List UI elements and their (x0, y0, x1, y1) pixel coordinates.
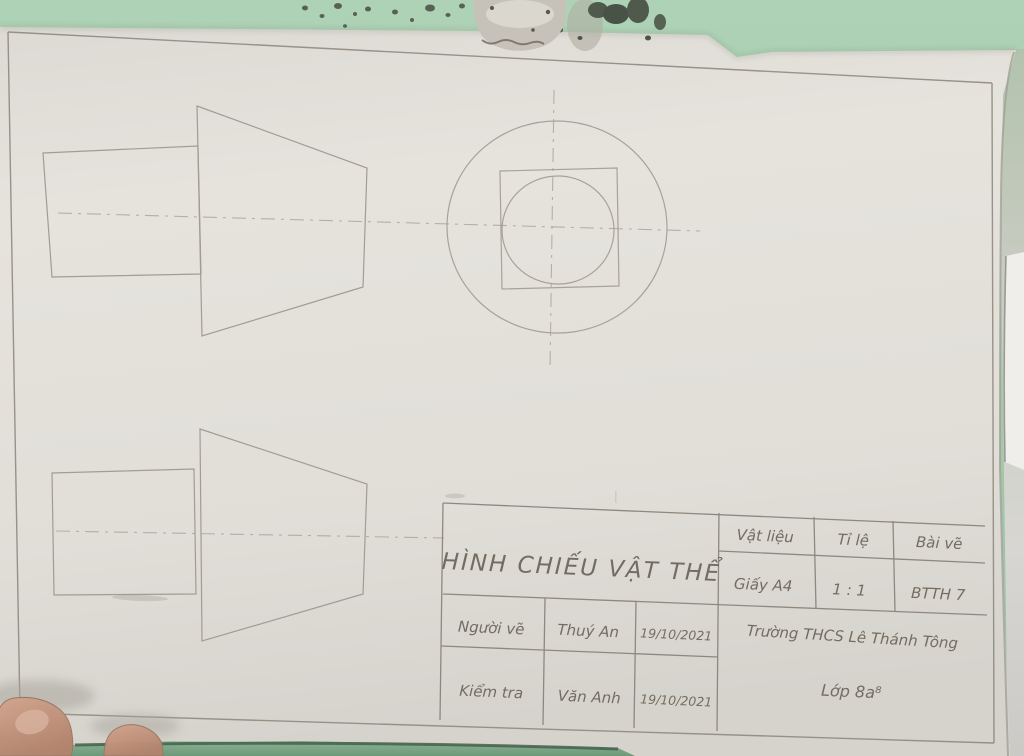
checked-by-date: 19/10/2021 (640, 691, 713, 709)
material-value: Giấy A4 (734, 575, 793, 596)
photo-of-technical-drawing: HÌNH CHIẾU VẬT THỂ Vật liệu Tỉ lệ Bài vẽ… (0, 0, 1024, 756)
drawn-by-name: Thuý An (557, 621, 619, 642)
checked-by-name: Văn Anh (557, 687, 621, 708)
paper-scrap (1004, 252, 1024, 470)
material-label: Vật liệu (736, 526, 794, 546)
drawn-by-date: 19/10/2021 (640, 625, 713, 643)
scale-label: Tỉ lệ (837, 530, 869, 549)
scale-value: 1 : 1 (832, 580, 866, 599)
class-name: Lớp 8a⁸ (821, 681, 883, 703)
drawing-number-value: BTTH 7 (911, 584, 966, 604)
drawn-by-label: Người vẽ (458, 618, 525, 639)
checked-by-label: Kiểm tra (459, 682, 524, 703)
drawing-number-label: Bài vẽ (916, 533, 963, 553)
